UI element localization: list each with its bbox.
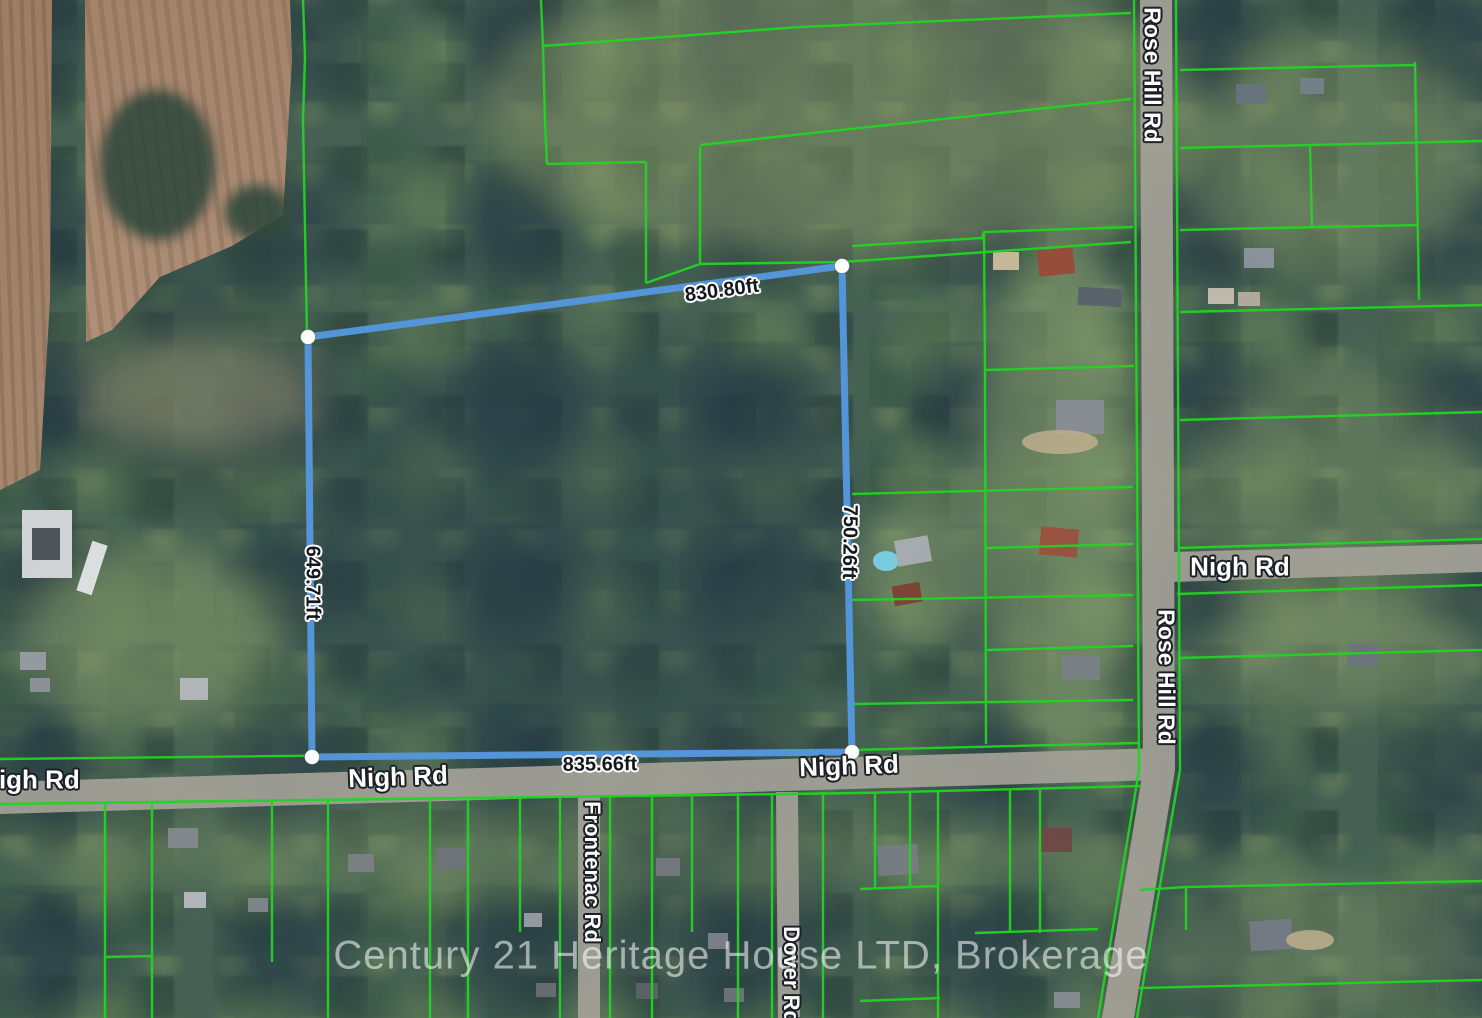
satellite-property-map: 830.80ft 750.26ft 835.66ft 649.71ft Rose… <box>0 0 1482 1018</box>
property-boundary <box>301 259 860 765</box>
boundary-vertex <box>305 750 320 765</box>
road-label-nigh-east: Nigh Rd <box>1190 552 1290 583</box>
measurement-bottom: 835.66ft <box>563 753 638 777</box>
road-label-frontenac: Frontenac Rd <box>579 801 605 943</box>
road-label-nigh-left: Nigh Rd <box>348 760 449 794</box>
road-label-rose-hill-mid: Rose Hill Rd <box>1153 609 1180 744</box>
brokerage-watermark: Century 21 Heritage House LTD, Brokerage <box>333 934 1148 979</box>
measurement-right: 750.26ft <box>837 505 861 580</box>
boundary-vertex <box>835 259 850 274</box>
road-label-nigh-far-left: Nigh Rd <box>0 765 80 796</box>
road-label-rose-hill-top: Rose Hill Rd <box>1139 7 1166 142</box>
boundary-polygon <box>308 266 852 757</box>
road-label-nigh-right: Nigh Rd <box>799 749 900 783</box>
parcel-lines-top <box>303 0 1180 1018</box>
measurement-left: 649.71ft <box>301 546 324 621</box>
parcel-lines <box>0 0 1482 1018</box>
map-overlay <box>0 0 1482 1018</box>
roads-layer <box>0 0 1482 1018</box>
boundary-vertex <box>301 330 316 345</box>
